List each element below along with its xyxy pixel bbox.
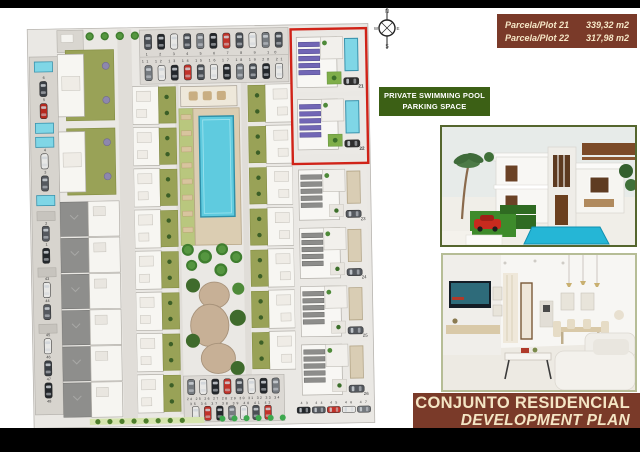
entry-door [555,195,568,225]
plot-21-area: 339,32 m2 [586,20,629,30]
plot-number: 47 [47,377,51,381]
plot-area-legend: Parcela/Plot 21 339,32 m2 Parcela/Plot 2… [497,14,637,48]
plot-22-label: Parcela/Plot 22 [505,33,569,43]
plot-26-number: 26 [364,391,370,396]
poster-canvas: 1 2 3 4 5 6 7 8 9 10 11 12 13 14 15 16 1… [0,0,640,452]
legend-row-plot-22: Parcela/Plot 22 317,98 m2 [505,33,629,43]
plot-21-number: 21 [358,83,364,88]
villa-pool [524,227,609,244]
exterior-render-drawing [442,127,635,245]
site-plan-drawing: 1 2 3 4 5 6 7 8 9 10 11 12 13 14 15 16 1… [27,23,376,429]
plot-number: 44 [45,299,49,303]
plot-number: 46 [46,355,50,359]
plot-number: 48 [47,400,51,404]
wood-fence [582,143,635,155]
rowhouse-column-right [248,84,296,370]
exterior-render-photo [440,125,637,247]
plot-number: 43 [45,277,49,281]
banner-title-line1: CONJUNTO RESIDENCIAL [413,395,630,413]
entry-block [57,30,84,53]
plot-23-number: 23 [361,216,367,221]
site-plan: 1 2 3 4 5 6 7 8 9 10 11 12 13 14 15 16 1… [27,23,376,429]
compass-north: N [385,9,389,15]
tv-wall [446,281,502,334]
feature-label: PRIVATE SWIMMING POOL PARKING SPACE [379,87,490,116]
plot-number: 2 [45,222,47,226]
feature-label-line1: PRIVATE SWIMMING POOL [381,91,488,102]
compass-west: W [374,26,379,31]
legend-row-plot-21: Parcela/Plot 21 339,32 m2 [505,20,629,30]
plant [614,310,624,320]
right-villas-23-26: 23 24 25 26 [296,166,370,400]
top-black-bar [0,0,640,8]
glass-door [521,283,532,339]
plot-number: 6 [43,76,45,80]
bottom-black-bar [0,428,640,452]
interior-render-drawing [443,255,635,390]
plot-22-number: 22 [359,146,365,151]
plot-number: 5 [43,98,45,102]
plot-number: 1 [45,243,47,247]
curtain [503,273,518,343]
plot-22-area: 317,98 m2 [586,33,629,43]
title-banner: CONJUNTO RESIDENCIAL DEVELOPMENT PLAN [413,393,640,428]
compass-rose: N S E W [372,4,402,52]
bush [619,164,633,178]
dining-table [559,327,603,332]
plot-24-number: 24 [362,274,368,279]
compass-east: E [396,26,399,31]
top-parking: 1 2 3 4 5 6 7 8 9 10 11 12 13 14 15 16 1… [139,27,289,84]
plot-number: 45 [46,333,50,337]
communal-pool-area [178,86,241,246]
plot-number: 4 [44,148,46,152]
sideboard [446,325,500,334]
outdoor-table [584,199,614,207]
plot-number: 3 [44,170,46,174]
feature-label-line2: PARKING SPACE [381,102,488,113]
plot-21-label: Parcela/Plot 21 [505,20,569,30]
compass-south: S [385,44,389,50]
interior-render-photo [441,253,637,392]
plot-25-number: 25 [363,333,369,338]
